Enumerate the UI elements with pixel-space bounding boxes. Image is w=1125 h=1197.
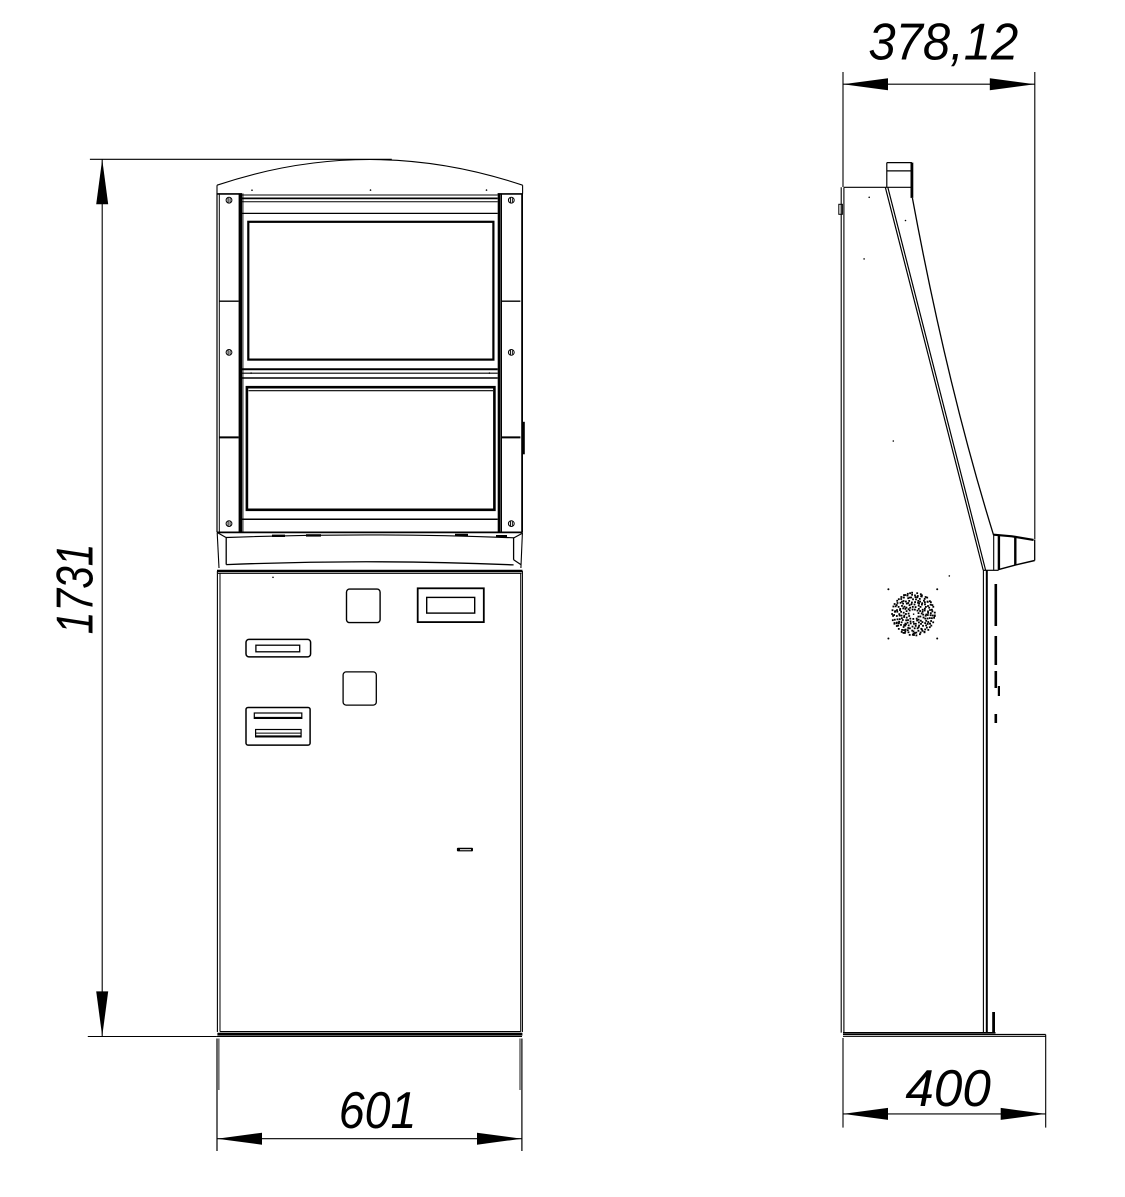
svg-text:378,12: 378,12 (868, 12, 1018, 71)
svg-text:601: 601 (339, 1082, 417, 1140)
svg-text:400: 400 (905, 1058, 991, 1116)
svg-text:1731: 1731 (46, 544, 104, 635)
